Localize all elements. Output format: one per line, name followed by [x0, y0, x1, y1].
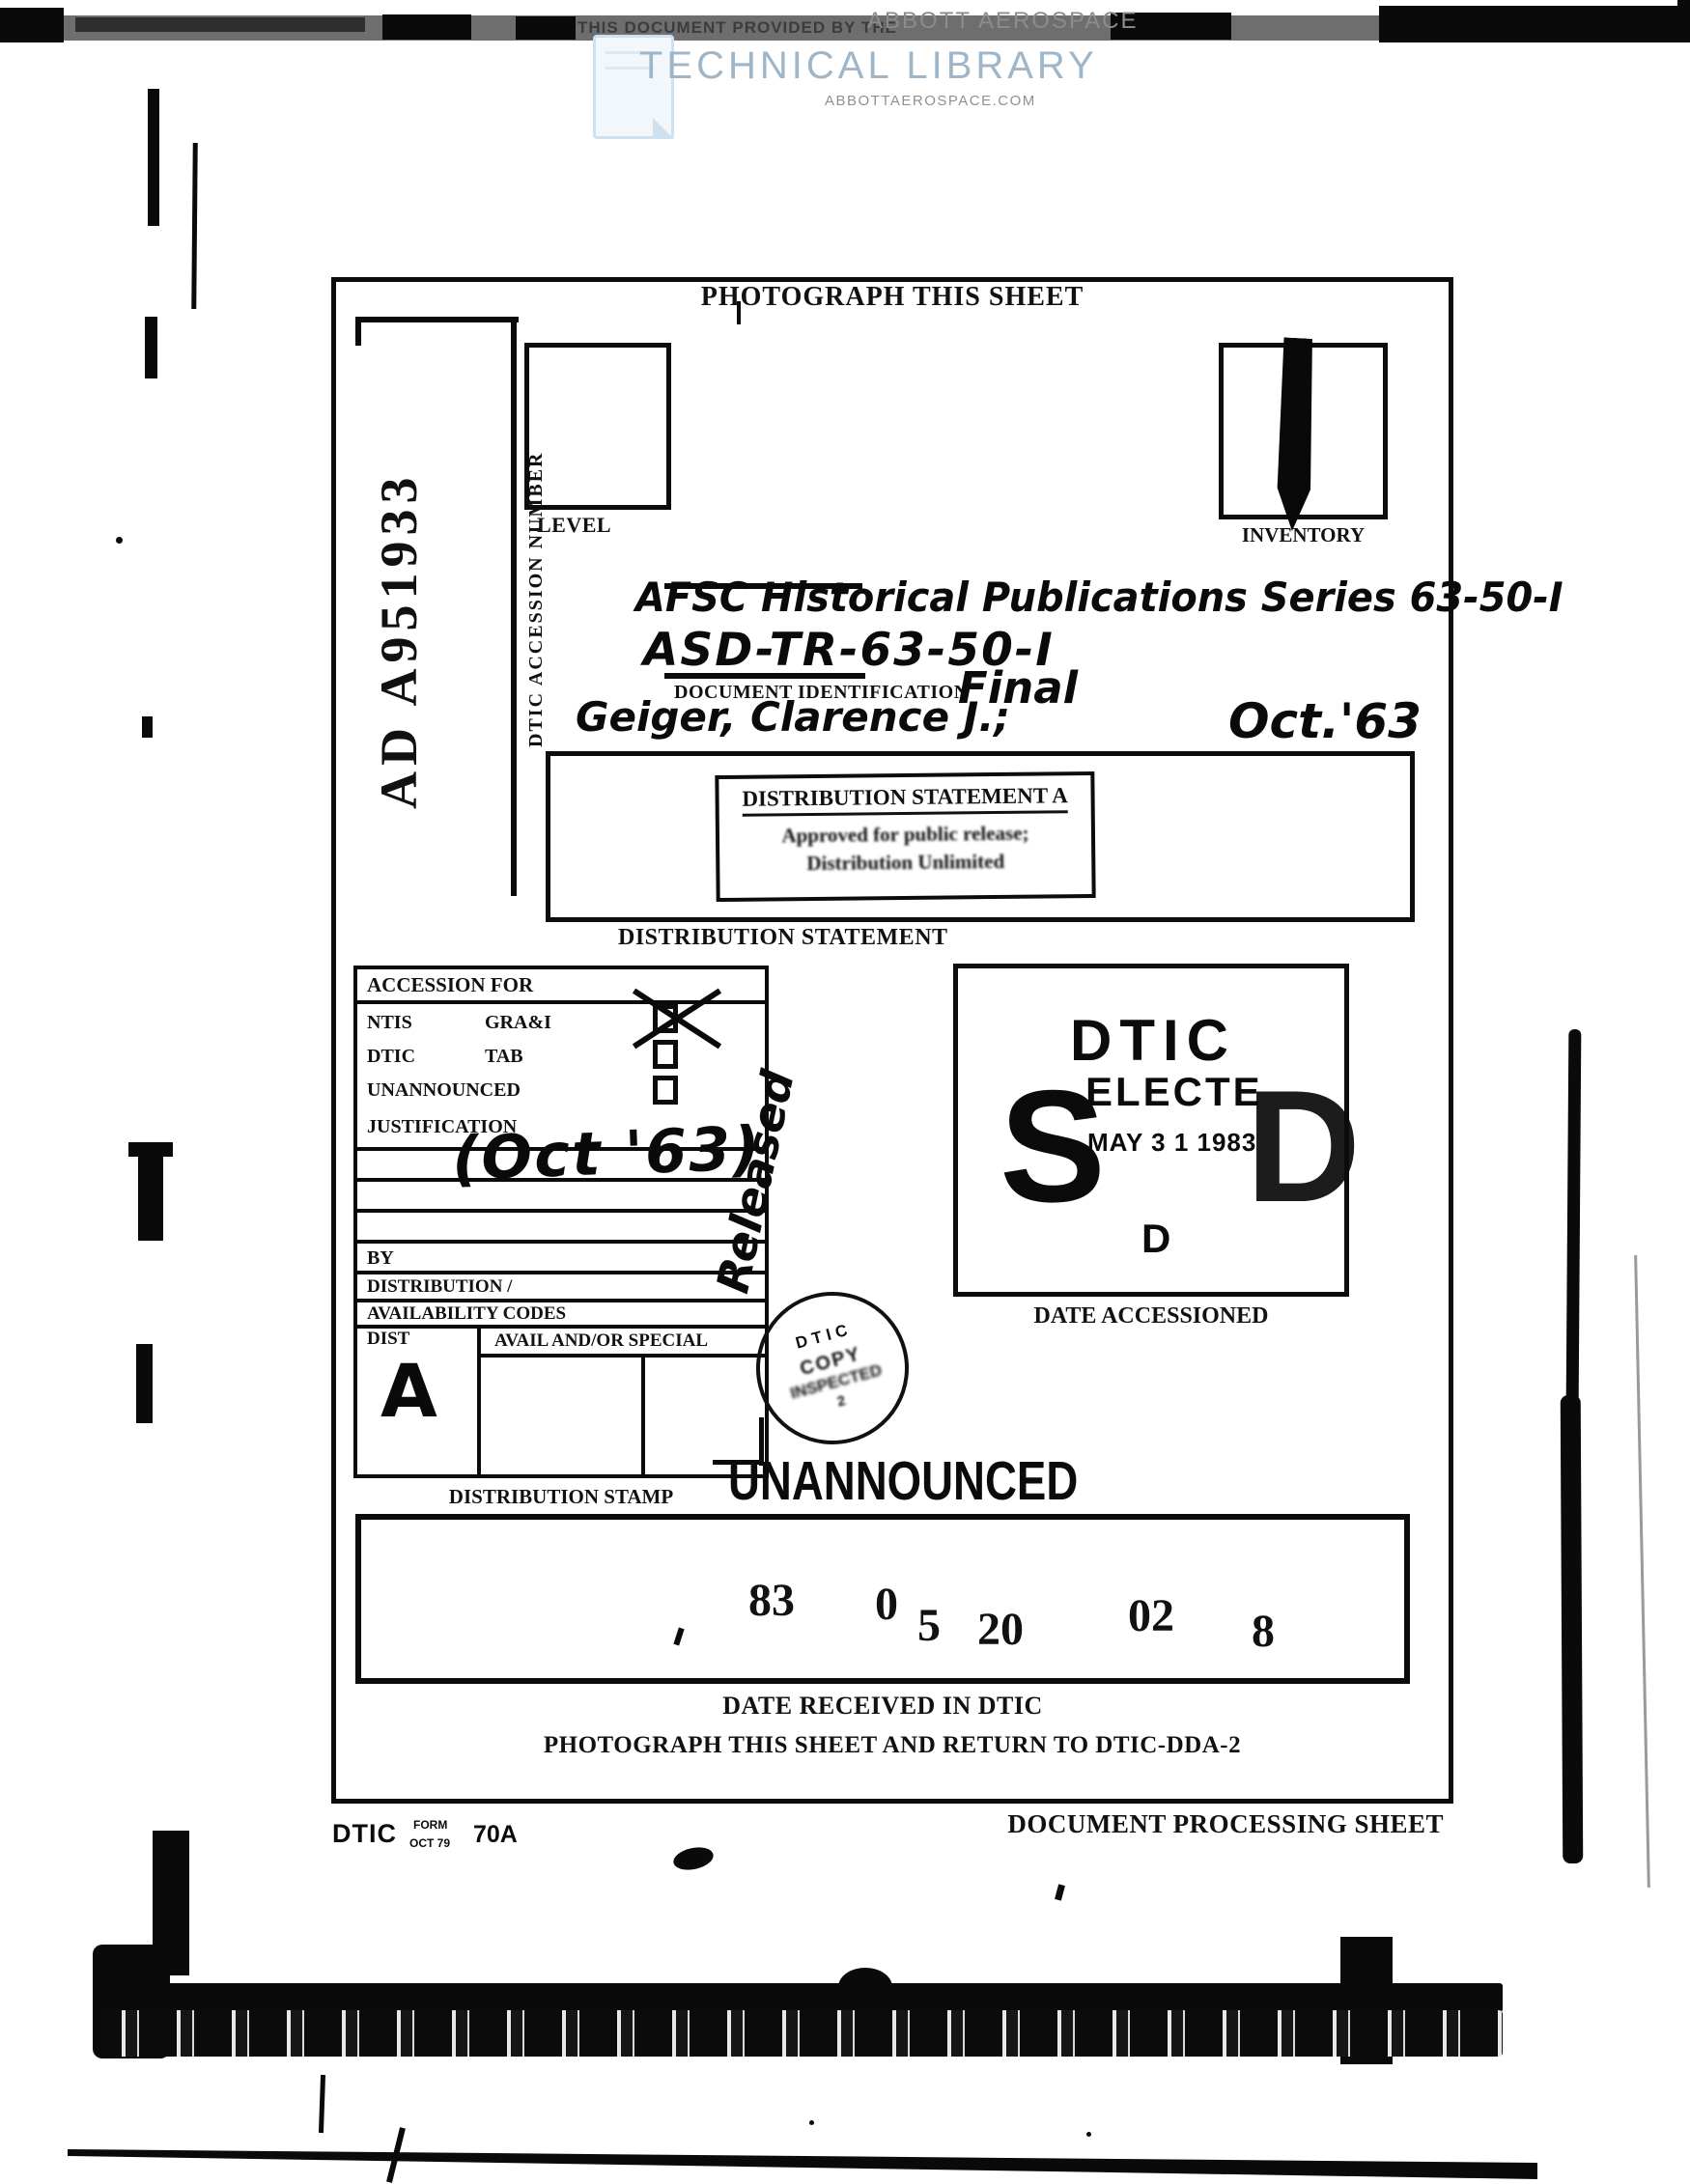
film-mark	[148, 89, 159, 226]
footer-form-date: OCT 79	[409, 1837, 450, 1849]
ink-mark	[1055, 1884, 1065, 1900]
dtic-label: DTIC	[367, 1046, 415, 1068]
avail-special-label: AVAIL AND/OR SPECIAL	[494, 1330, 708, 1352]
table-rule	[353, 1271, 769, 1274]
scanned-document-page: THIS DOCUMENT PROVIDED BY THE ABBOTT AER…	[0, 0, 1690, 2184]
return-instruction: PHOTOGRAPH THIS SHEET AND RETURN TO DTIC…	[331, 1732, 1453, 1759]
stamp-date: MAY 3 1 1983	[1087, 1130, 1256, 1155]
scratch-line	[1634, 1255, 1650, 1888]
film-mark	[128, 1142, 173, 1157]
banner-title: TECHNICAL LIBRARY	[639, 44, 1098, 88]
accession-for-header: ACCESSION FOR	[367, 973, 533, 997]
handwritten-justification-note: (Oct '63)	[451, 1112, 763, 1193]
scratch-mark	[386, 2127, 406, 2183]
handwritten-dist-code: A	[380, 1348, 437, 1434]
unannounced-checkbox	[653, 1076, 678, 1105]
availability-codes-label: AVAILABILITY CODES	[367, 1303, 566, 1325]
film-mark	[1677, 0, 1690, 39]
distribution-statement-label: DISTRIBUTION STATEMENT	[618, 925, 927, 951]
ad-accession-number: AD A951933	[369, 471, 429, 809]
distribution-stamp-label: DISTRIBUTION STAMP	[353, 1485, 769, 1509]
scratch-mark	[1566, 1029, 1582, 1406]
dot-mark	[116, 537, 123, 544]
date-accessioned-label: DATE ACCESSIONED	[953, 1303, 1349, 1330]
stamp-big-d: D	[1246, 1067, 1361, 1226]
unannounced-stamp: UNANNOUNCED	[728, 1454, 1078, 1509]
bracket-line	[355, 317, 361, 346]
date-received-label: DATE RECEIVED IN DTIC	[355, 1692, 1410, 1721]
table-divider	[477, 1325, 481, 1478]
table-rule	[477, 1354, 769, 1358]
table-rule	[353, 1299, 769, 1302]
inventory-label: INVENTORY	[1219, 523, 1388, 547]
dist-column-label: DIST	[367, 1329, 409, 1350]
unannounced-row-label: UNANNOUNCED	[367, 1079, 521, 1102]
dtic-tab-checkbox	[653, 1040, 678, 1069]
banner-provided-by: THIS DOCUMENT PROVIDED BY THE	[577, 18, 897, 38]
ink-blob	[671, 1844, 716, 1873]
film-mark	[382, 14, 471, 40]
scratch-mark	[1561, 1395, 1584, 1863]
received-digit-group: 0	[875, 1578, 898, 1631]
table-rule	[353, 1325, 769, 1329]
banner-provider: ABBOTT AEROSPACE	[867, 8, 1139, 35]
stamp-small-d: D	[1141, 1218, 1170, 1259]
scratch-mark	[319, 2075, 325, 2133]
grai-label: GRA&I	[485, 1012, 551, 1034]
film-mark	[145, 317, 157, 378]
table-divider	[641, 1354, 645, 1478]
received-digit-group: 02	[1128, 1589, 1174, 1642]
film-mark	[1379, 6, 1690, 42]
film-mark	[138, 1142, 163, 1241]
document-processing-sheet-label: DOCUMENT PROCESSING SHEET	[1004, 1809, 1444, 1839]
round-stamp-number: 2	[835, 1392, 847, 1411]
film-band-noise	[100, 2010, 1503, 2057]
footer-form-word: FORM	[413, 1819, 447, 1831]
tab-label: TAB	[485, 1046, 523, 1068]
film-mark	[0, 8, 64, 42]
distribution-statement-a-title: DISTRIBUTION STATEMENT A	[742, 783, 1068, 817]
film-mark	[136, 1344, 153, 1423]
handwritten-series-line: AFSC Historical Publications Series 63-5…	[635, 574, 1563, 621]
handwritten-author: Geiger, Clarence J.;	[576, 693, 1010, 741]
tick-mark	[737, 301, 741, 324]
table-rule	[353, 1240, 769, 1244]
scratch-mark	[191, 143, 198, 309]
dot-mark	[809, 2120, 814, 2125]
photograph-this-sheet-header: PHOTOGRAPH THIS SHEET	[331, 282, 1453, 313]
received-digit-group: 83	[748, 1574, 795, 1627]
distribution-slash-label: DISTRIBUTION /	[367, 1276, 512, 1298]
received-digit-group: 5	[917, 1599, 941, 1652]
distribution-unlimited-line: Distribution Unlimited	[806, 850, 1004, 876]
received-digit-group: 8	[1252, 1605, 1275, 1658]
ntis-label: NTIS	[367, 1012, 412, 1034]
dot-mark	[1086, 2132, 1091, 2137]
level-box	[524, 343, 671, 510]
electe-text: ELECTE	[1085, 1072, 1263, 1112]
footer-form-number: 70A	[473, 1823, 518, 1847]
film-mark	[75, 17, 365, 32]
table-rule	[353, 1209, 769, 1213]
approved-release-line: Approved for public release;	[781, 822, 1028, 849]
bracket-line	[511, 317, 517, 896]
by-label: BY	[367, 1247, 394, 1270]
banner-url: ABBOTTAEROSPACE.COM	[825, 93, 1036, 109]
distribution-statement-stamp: DISTRIBUTION STATEMENT A Approved for pu…	[715, 771, 1095, 902]
film-band-top	[100, 1983, 1503, 2012]
handwritten-date: Oct.'63	[1228, 693, 1422, 749]
bracket-line	[357, 317, 519, 322]
film-mark	[516, 16, 576, 40]
level-label: LEVEL	[537, 513, 611, 538]
received-digit-group: 20	[977, 1603, 1024, 1656]
film-mark	[142, 716, 153, 738]
footer-dtic: DTIC	[332, 1821, 397, 1847]
